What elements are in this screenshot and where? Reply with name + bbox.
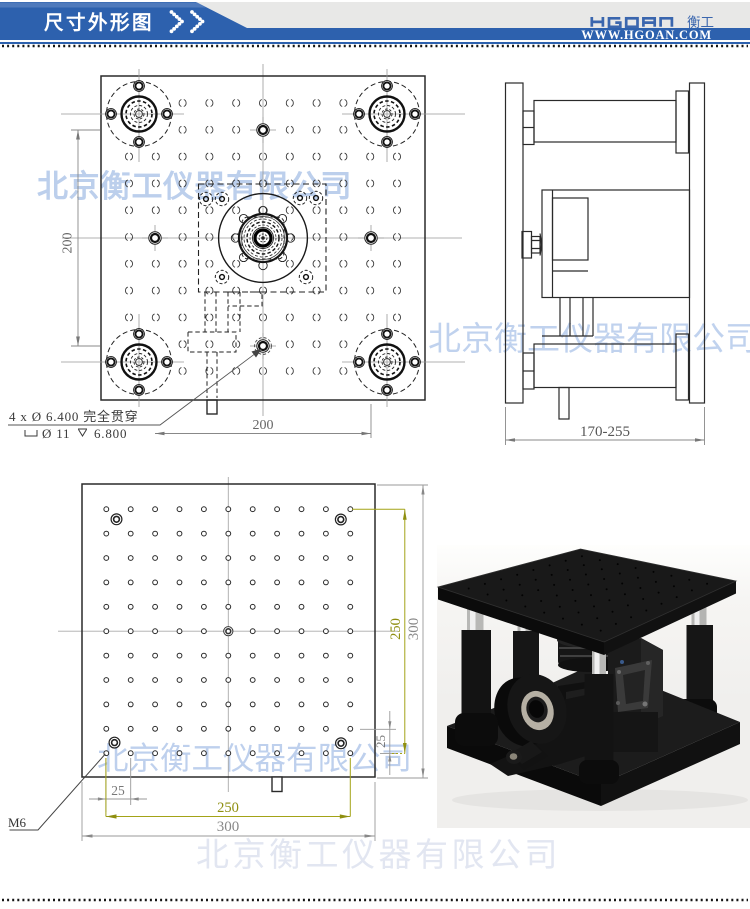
svg-text:250: 250	[388, 618, 404, 640]
svg-text:300: 300	[217, 819, 240, 835]
svg-text:25: 25	[111, 783, 125, 798]
svg-text:北京衡工仪器有限公司: 北京衡工仪器有限公司	[37, 169, 352, 204]
svg-text:200: 200	[61, 233, 76, 254]
svg-text:北京衡工仪器有限公司: 北京衡工仪器有限公司	[196, 836, 561, 873]
svg-text:M6: M6	[8, 815, 27, 830]
svg-text:北京衡工仪器有限公司: 北京衡工仪器有限公司	[97, 740, 412, 776]
svg-text:北京衡工仪器有限公司: 北京衡工仪器有限公司	[428, 320, 750, 357]
svg-text:尺寸外形图: 尺寸外形图	[44, 11, 154, 34]
svg-text:4 x Ø 6.400 完全贯穿: 4 x Ø 6.400 完全贯穿	[9, 409, 138, 424]
svg-text:WWW.HGOAN.COM: WWW.HGOAN.COM	[581, 28, 712, 42]
svg-text:250: 250	[217, 800, 239, 816]
svg-text:6.800: 6.800	[94, 426, 127, 441]
svg-text:200: 200	[253, 418, 274, 433]
svg-text:170-255: 170-255	[580, 424, 630, 440]
svg-text:300: 300	[406, 618, 422, 641]
svg-text:25: 25	[373, 735, 388, 748]
svg-text:Ø 11: Ø 11	[42, 426, 70, 441]
